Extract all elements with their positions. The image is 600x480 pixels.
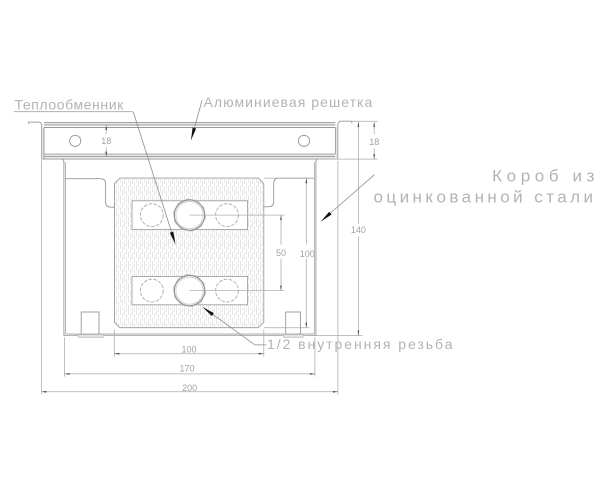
- svg-text:Алюминиевая решетка: Алюминиевая решетка: [204, 94, 374, 110]
- svg-text:200: 200: [182, 383, 197, 393]
- svg-text:170: 170: [179, 363, 194, 373]
- svg-text:100: 100: [181, 344, 196, 354]
- svg-text:оцинкованной стали: оцинкованной стали: [374, 187, 597, 206]
- svg-text:140: 140: [351, 225, 366, 235]
- svg-text:100: 100: [300, 249, 315, 259]
- svg-text:50: 50: [276, 248, 286, 258]
- svg-text:Теплообменник: Теплообменник: [15, 96, 125, 112]
- svg-text:18: 18: [101, 136, 111, 146]
- svg-text:Короб из: Короб из: [492, 166, 599, 185]
- svg-text:1/2 внутренняя резьба: 1/2 внутренняя резьба: [267, 336, 454, 352]
- svg-text:18: 18: [369, 137, 379, 147]
